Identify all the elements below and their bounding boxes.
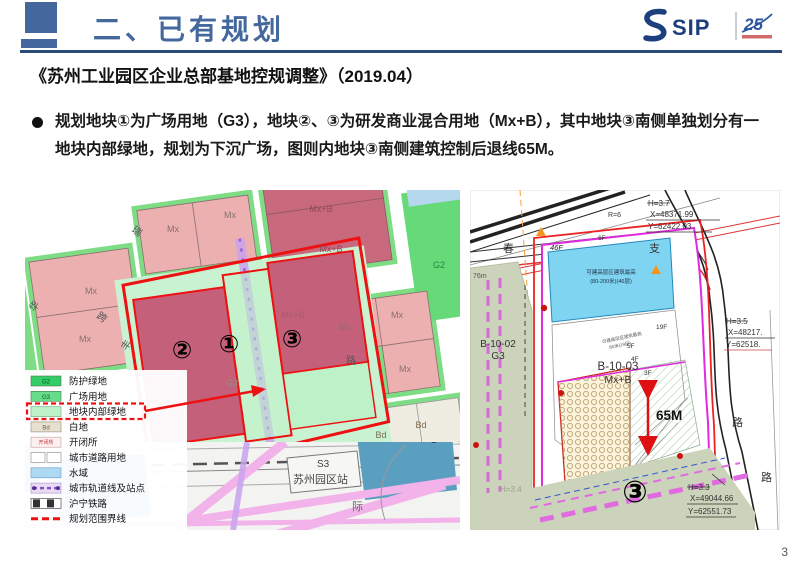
highrise-note-line2: (80-200米)(46层): [590, 277, 632, 285]
parcel-label-mx: Mx: [339, 322, 351, 332]
legend-swatch-code: Bd: [42, 425, 49, 431]
cad-plan: 46F 可建高层区建筑最高 (80-200米)(46层) 65M B-10-03…: [470, 190, 780, 530]
parcel-label-bd: Bd: [415, 420, 426, 430]
parcel-label-mx: Mx: [85, 286, 97, 296]
plot1-number: ①: [219, 331, 239, 358]
parcel-label-mxb: Mx+B: [309, 204, 332, 214]
radius-label: R=6: [608, 212, 621, 219]
sip-swoosh-icon: [646, 12, 664, 39]
parcel-label-g2: G2: [433, 260, 445, 270]
legend-swatch-code: G2: [42, 380, 51, 386]
plot2-number: ②: [172, 337, 192, 364]
road-name-zhi: 支: [649, 242, 660, 255]
legend-item-label: 地块内部绿地: [69, 406, 127, 418]
legend-item-label: 城市道路用地: [69, 452, 127, 464]
parcel-label-mxb: Mx+B: [319, 244, 342, 254]
station-name: 苏州园区站: [293, 472, 348, 486]
callout-x: X=48371.99: [650, 210, 694, 219]
setback-dimension-label: 65M: [656, 408, 682, 423]
parcel-label-mxb: Mx+B: [281, 310, 304, 320]
callout-y: Y=62551.73: [688, 507, 732, 516]
header-divider: [20, 50, 782, 53]
bullet-text: 规划地块①为广场用地（G3），地块②、③为研发商业混合用地（Mx+B），其中地块…: [55, 108, 772, 164]
header-accent-square: [25, 2, 57, 33]
legend-item-label: 水域: [69, 467, 89, 479]
parcel-use: Mx+B: [604, 374, 631, 386]
floor-label: 19F: [656, 324, 667, 331]
anniversary-caption-mark: [742, 35, 772, 39]
floor-label: 6F: [598, 235, 606, 242]
parcel-label-g3: G3: [226, 378, 238, 388]
callout-h: H=3.7: [648, 199, 670, 208]
legend-item-label: 开闭所: [69, 437, 98, 449]
legend-swatch-code: G3: [42, 395, 51, 401]
sip-logo: SIP 25: [632, 4, 782, 48]
parcel-use: G3: [491, 351, 505, 362]
road-name-lu: 路: [346, 354, 356, 367]
plot3-internal-green: [283, 362, 376, 429]
doc-title: 《苏州工业园区企业总部基地控规调整》（2019.04）: [30, 62, 423, 87]
parcel-label-mx: Mx: [79, 334, 91, 344]
station-callout-box: [287, 451, 361, 493]
zoning-map: S3 苏州园区站 际 B: [25, 190, 460, 530]
parcel-id: B-10-02: [480, 339, 516, 350]
page-title: 二、已有规划: [93, 8, 285, 48]
station-code: S3: [317, 459, 330, 470]
highrise-note-line1: 可建高层区建筑最高: [586, 268, 636, 276]
bullet-row: 规划地块①为广场用地（G3），地块②、③为研发商业混合用地（Mx+B），其中地块…: [30, 108, 772, 164]
parcel-label-mx: Mx: [224, 210, 236, 220]
elevation-faint: H=3.4: [500, 485, 522, 494]
road-name-lu: 路: [732, 416, 743, 429]
legend-item-label: 白地: [69, 421, 89, 433]
callout-y: Y=62422.03: [648, 222, 692, 231]
legend-item-label: 沪宁铁路: [69, 498, 108, 510]
header-accent-bar: [21, 39, 57, 48]
callout-h: H=3.3: [688, 483, 710, 492]
callout-x: X=49044.66: [690, 494, 734, 503]
callout-x: X=48217.: [728, 328, 762, 337]
callout-h: H=3.5: [726, 317, 748, 326]
floor-label-46f: 46F: [550, 243, 563, 252]
road-name-lu: 路: [761, 471, 772, 484]
plot3-number: ③: [622, 476, 647, 509]
bullet-icon: [32, 117, 43, 128]
parcel-label-bd: Bd: [375, 430, 386, 440]
parcel-label-mx: Mx: [399, 364, 411, 374]
floor-label: 3F: [644, 370, 652, 377]
road-name-chun: 春: [503, 242, 514, 255]
parcel-label-mx: Mx: [167, 224, 179, 234]
road-name-ji: 际: [352, 500, 363, 513]
length-label: 76m: [473, 273, 487, 280]
floor-label: 4F: [631, 356, 639, 363]
legend-swatch-code: 开闭所: [38, 439, 53, 446]
callout-y: Y=62518.: [726, 340, 760, 349]
legend-item-label: 广场用地: [69, 391, 108, 403]
legend-item-label: 规划范围界线: [69, 513, 127, 525]
sip-logo-text: SIP: [672, 15, 710, 40]
page-number: 3: [781, 545, 788, 559]
parcel-label-mx: Mx: [391, 310, 403, 320]
plot3-number: ③: [282, 326, 302, 353]
legend-item-label: 城市轨道线及站点: [69, 483, 146, 495]
legend-item-label: 防护绿地: [69, 376, 108, 388]
